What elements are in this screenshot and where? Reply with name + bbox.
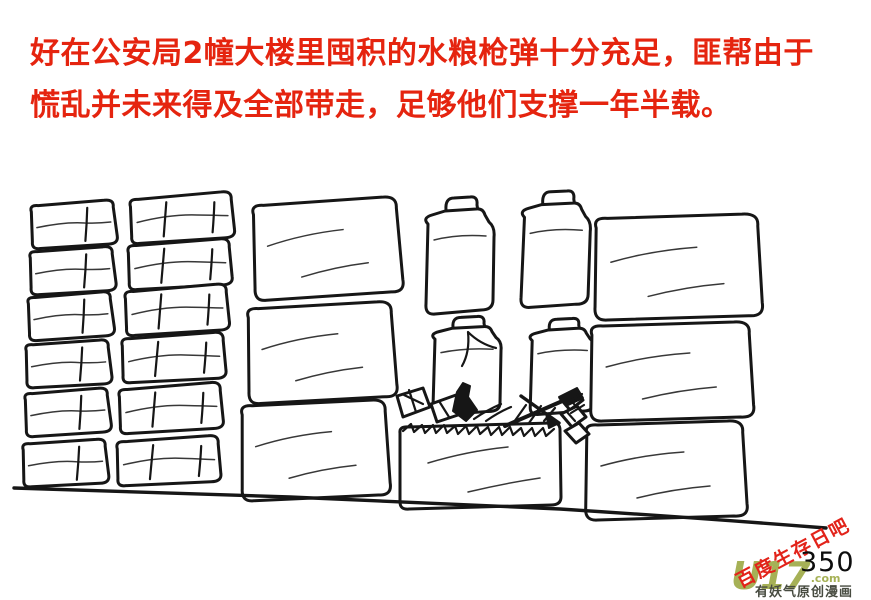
left-bale-stack-2 bbox=[117, 191, 235, 486]
comic-page: 好在公安局2幢大楼里囤积的水粮枪弹十分充足，匪帮由于 慌乱并未来得及全部带走，足… bbox=[0, 0, 871, 600]
right-sack-stack bbox=[586, 214, 763, 520]
stockpile-sketch bbox=[0, 0, 871, 600]
left-bale-stack-1 bbox=[23, 200, 118, 487]
bottom-center-sack bbox=[400, 423, 561, 509]
middle-sack-stack bbox=[241, 196, 404, 500]
u17-caption: 有妖气原创漫画 bbox=[755, 581, 853, 600]
water-jugs bbox=[426, 190, 595, 415]
page-number: 350 bbox=[800, 547, 855, 578]
